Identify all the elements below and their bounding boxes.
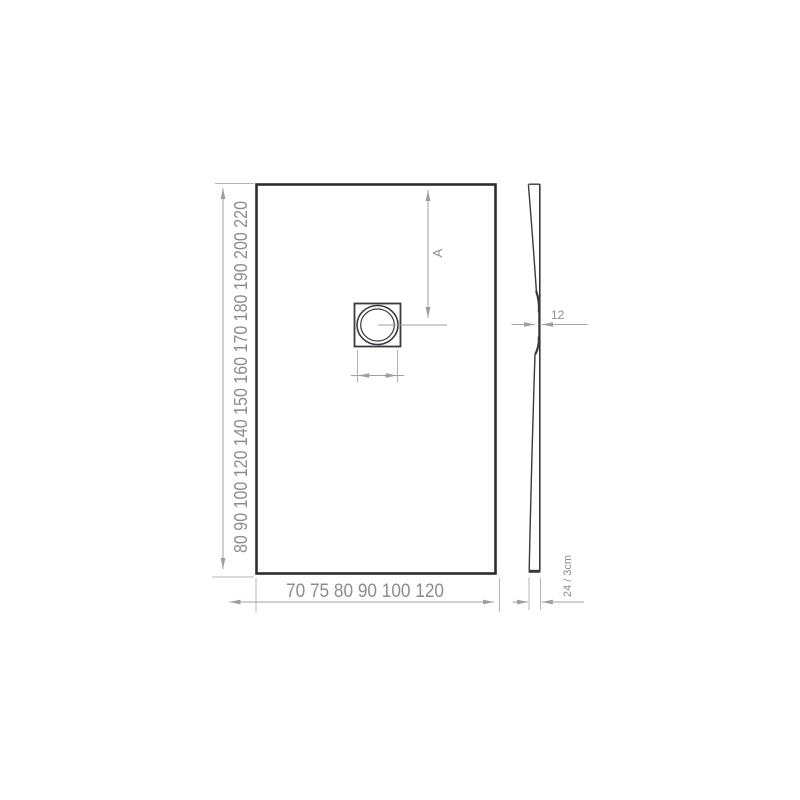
- profile-waist-hook-lower: [535, 337, 539, 355]
- lengths-label: 80 90 100 120 140 150 160 170 180 190 20…: [231, 201, 251, 553]
- technical-drawing-canvas: 80 90 100 120 140 150 160 170 180 190 20…: [0, 0, 800, 800]
- profile-waist-hook-upper: [536, 291, 539, 313]
- thickness-label: 12: [551, 308, 565, 322]
- edge-height-label: 24 / 3cm: [562, 555, 574, 597]
- widths-label: 70 75 80 90 100 120: [286, 580, 444, 602]
- plan-view-outline: [257, 185, 496, 574]
- drawing-page: 80 90 100 120 140 150 160 170 180 190 20…: [0, 0, 800, 800]
- drain-offset-label: A: [430, 248, 445, 257]
- profile-left-edge-upper: [528, 185, 536, 295]
- profile-left-edge-lower: [529, 355, 535, 571]
